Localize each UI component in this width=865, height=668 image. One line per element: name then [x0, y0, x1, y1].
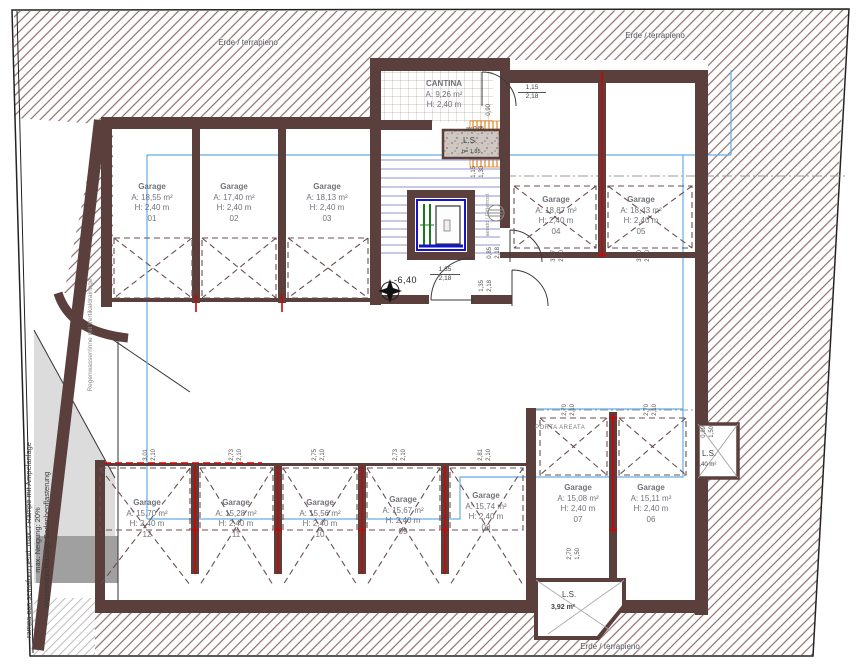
stall-dim-g07: 2,702,10	[562, 404, 577, 416]
lobby-door-dim: 1,352,18	[430, 266, 460, 283]
garage-05-label: GarageA: 18,43 m²H: 2,40 m05	[604, 195, 678, 237]
ls-cantina-top-dim: av 0,85	[466, 126, 484, 132]
garage-11-label: GarageA: 15,28 m²H: 2,40 m11	[199, 498, 273, 540]
ls-bottom-label: L.S.	[562, 590, 576, 599]
ls-right-label: L.S.	[702, 449, 716, 458]
ls-cantina-label: L.S.	[463, 136, 477, 145]
garage-08-label: GarageA: 15,74 m²H: 2,40 m08	[449, 491, 523, 533]
stall-dim-g11: 2,732,10	[229, 449, 244, 461]
garage-01-label: GarageA: 18,55 m²H: 2,40 m01	[115, 182, 189, 224]
garage-10-label: GarageA: 15,56 m²H: 2,40 m10	[283, 498, 357, 540]
earth-label-top-right: Erde / terrapieno	[607, 31, 703, 40]
ls-bottom-area: 3,92 m²	[551, 604, 575, 611]
cantina-door-dim: 1,152,18	[518, 84, 546, 101]
level-marker: -6,40	[394, 275, 417, 285]
garage-06-label: GarageA: 15,11 m²H: 2,40 m06	[614, 483, 688, 525]
ls-right-area: 1,40 m²	[696, 462, 716, 468]
stall-dim-g12: 3,012,10	[143, 449, 158, 461]
door-height-dim: 0,90	[486, 104, 493, 116]
porta-areata-label: PORTA AREATA	[535, 425, 585, 431]
stall-dim-g08: 2,812,10	[478, 449, 493, 461]
stall-dim-g05: 3,102,10	[637, 250, 652, 262]
ramp-note: rampa con semaforo pend. max. / Rampe mi…	[24, 415, 51, 665]
stall-dim-g06: 2,702,10	[644, 404, 659, 416]
side-door-b-dim: 1,352,18	[479, 280, 494, 292]
garage-floor-plan: Erde / terrapieno Erde / terrapieno Erde…	[0, 0, 865, 668]
drainage-note: Regenwasserrinne mit Vertikaldrainage	[86, 270, 95, 400]
ls-cantina-bottom-dim: b= 1,35	[462, 149, 481, 155]
garage-04-label: GarageA: 18,87 m²H: 2,40 m04	[519, 195, 593, 237]
garage-09-label: GarageA: 15,67 m²H: 2,40 m09	[366, 495, 440, 537]
ls-right-dims: 0,891,50	[701, 426, 716, 438]
earth-label-bottom: Erde / terrapieno	[562, 642, 658, 651]
elevator	[407, 190, 475, 260]
stall-dim-g04: 3,072,10	[551, 250, 566, 262]
garage-02-label: GarageA: 17,40 m²H: 2,40 m02	[197, 182, 271, 224]
earth-label-top-left: Erde / terrapieno	[200, 38, 296, 47]
cantina-label: CANTINA A: 9,26 m² H: 2,40 m	[407, 79, 481, 111]
garage-07-label: GarageA: 15,08 m²H: 2,40 m07	[541, 483, 615, 525]
garage-03-label: GarageA: 18,13 m²H: 2,40 m03	[290, 182, 364, 224]
stair-top-dims: 1,151,30	[471, 166, 486, 178]
stall-dim-g10: 2,752,10	[312, 449, 327, 461]
vent-note: aerato / Gitterrost	[484, 184, 493, 246]
side-door-a-dim: 0,852,18	[487, 247, 502, 259]
stall-dim-g09: 2,732,10	[393, 449, 408, 461]
ls-bottom-dims: 2,701,50	[567, 548, 582, 560]
garage-12-label: GarageA: 15,70 m²H: 2,40 m12	[110, 498, 184, 540]
